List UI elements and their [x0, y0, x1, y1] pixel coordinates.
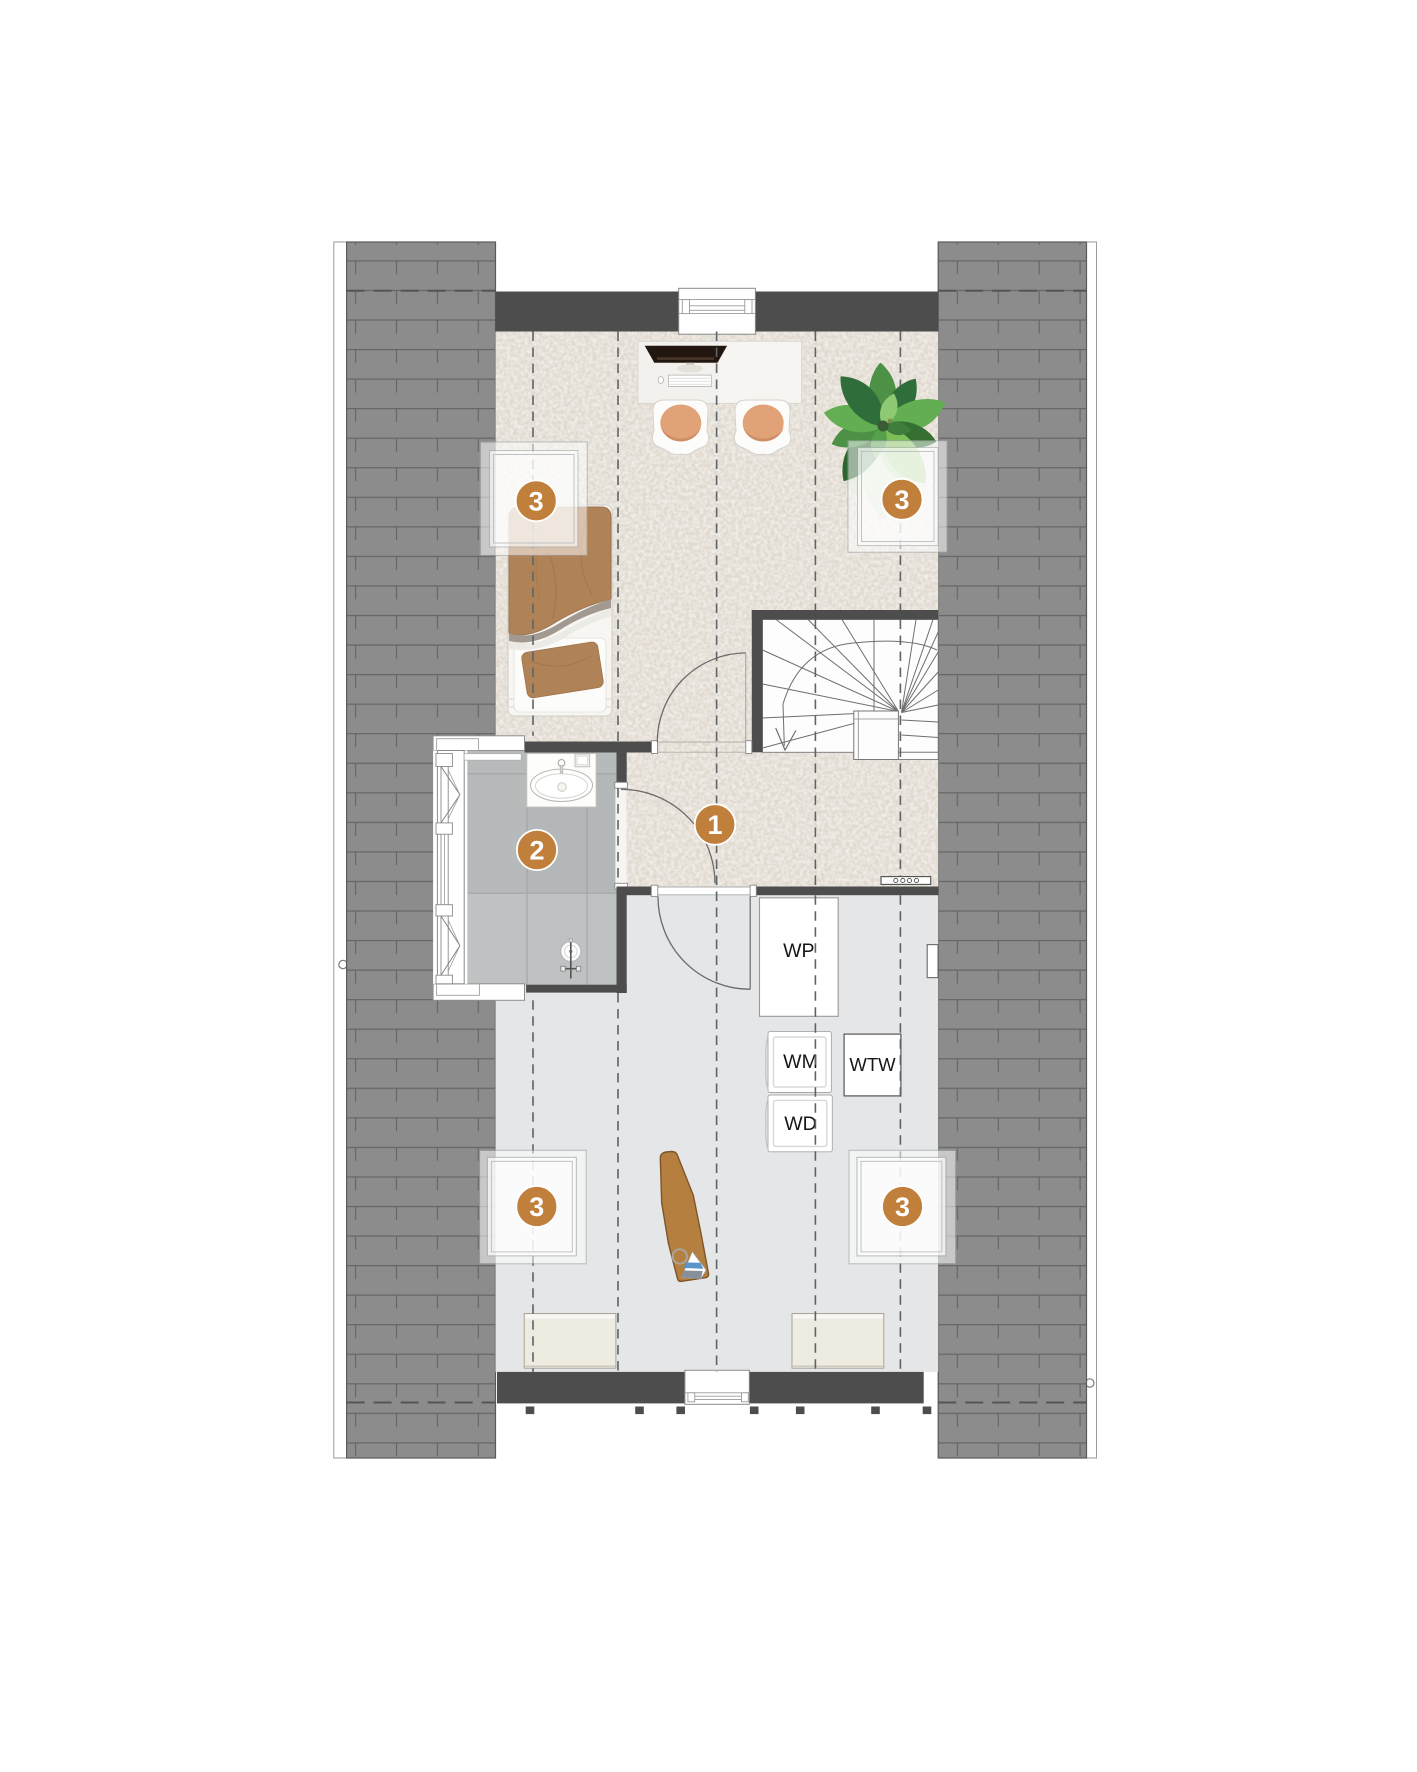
svg-text:WTW: WTW	[849, 1054, 896, 1075]
svg-text:WD: WD	[784, 1113, 817, 1135]
svg-text:3: 3	[529, 1192, 544, 1222]
svg-text:3: 3	[894, 485, 909, 515]
svg-text:3: 3	[529, 486, 544, 516]
svg-text:WP: WP	[783, 940, 814, 962]
svg-text:3: 3	[895, 1192, 910, 1222]
svg-text:1: 1	[707, 810, 722, 840]
svg-text:2: 2	[529, 836, 544, 866]
svg-text:WM: WM	[783, 1051, 818, 1073]
